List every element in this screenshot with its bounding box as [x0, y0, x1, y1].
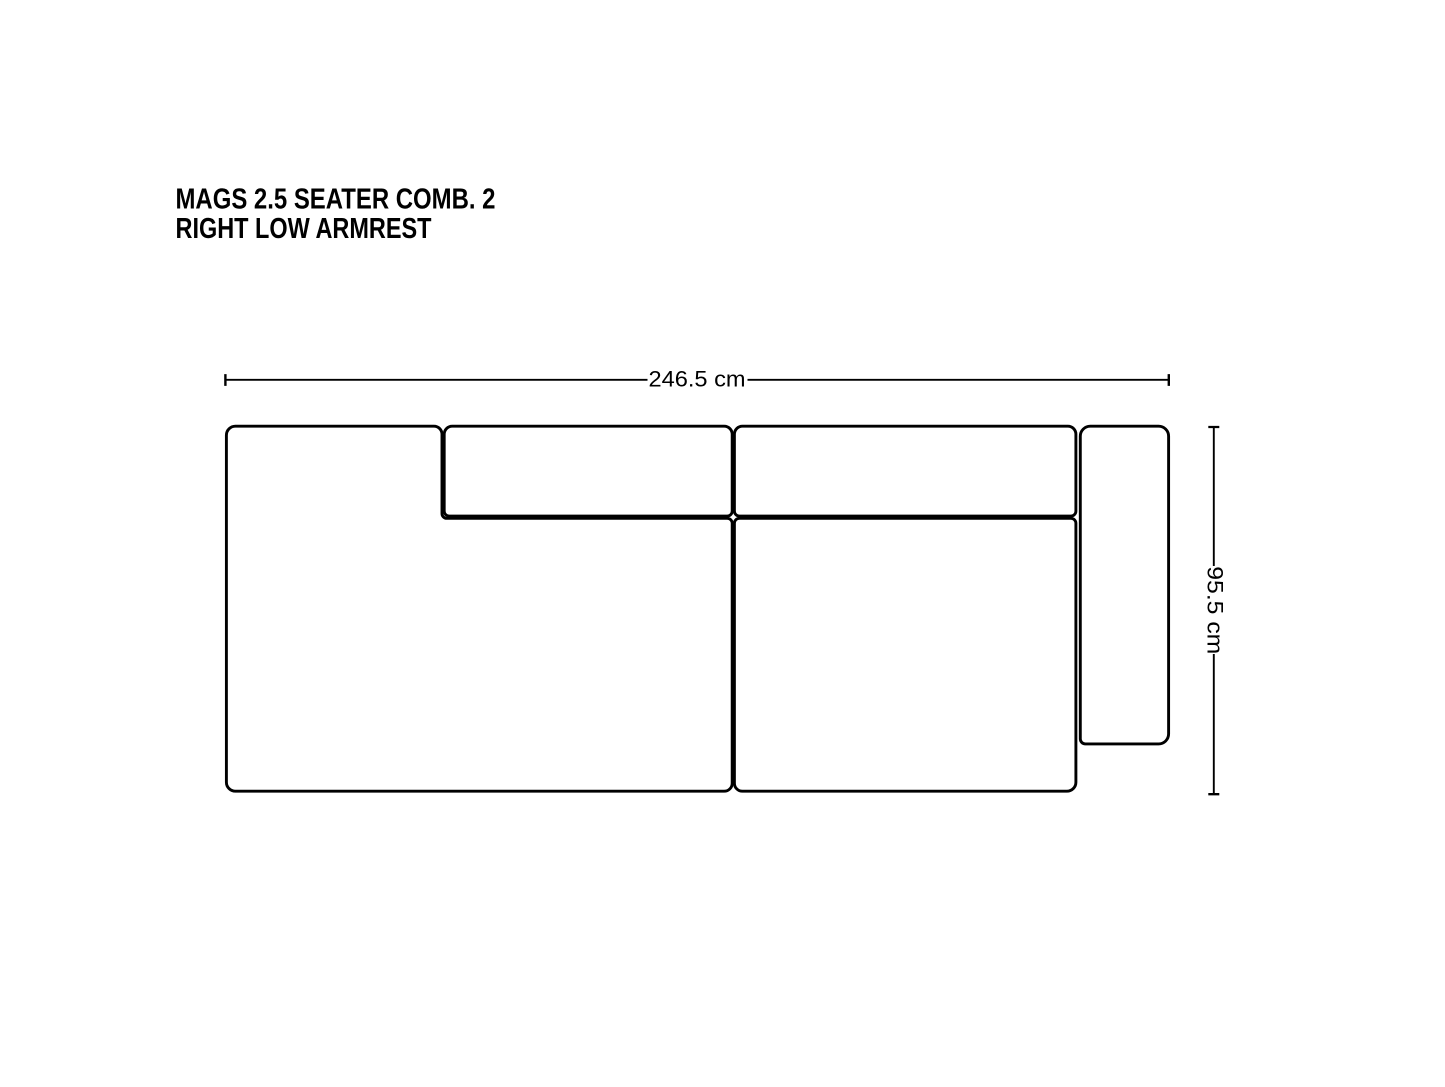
svg-text:246.5 cm: 246.5 cm: [649, 367, 746, 392]
svg-text:RIGHT LOW ARMREST: RIGHT LOW ARMREST: [176, 213, 432, 245]
svg-text:MAGS 2.5 SEATER COMB. 2: MAGS 2.5 SEATER COMB. 2: [176, 183, 496, 215]
svg-text:95.5 cm: 95.5 cm: [1202, 566, 1227, 654]
